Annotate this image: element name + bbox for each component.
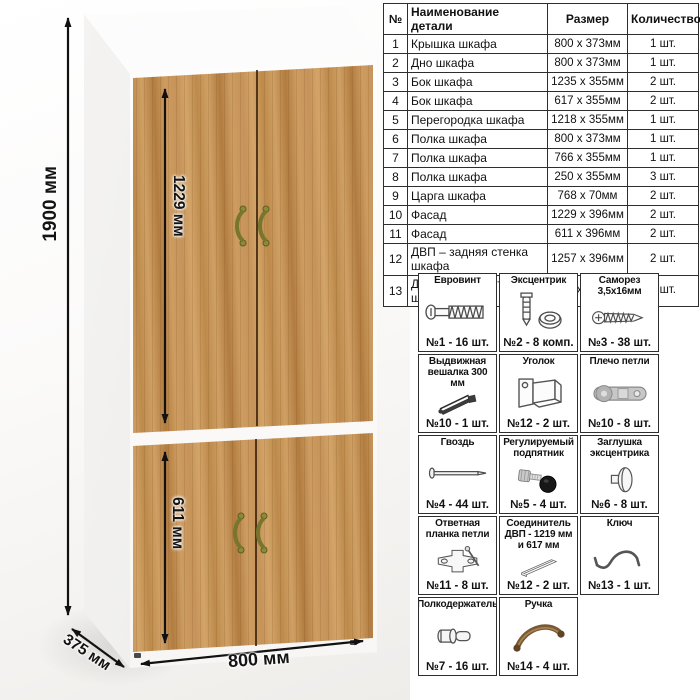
hinge-arm-icon <box>584 368 656 418</box>
hardware-item-count: №1 - 16 шт. <box>426 337 489 349</box>
part-size-cell: 617 х 355мм <box>548 92 628 111</box>
part-quantity-cell: 2 шт. <box>628 225 699 244</box>
hardware-cell: Регулируемый подпятник №5 - 4 шт. <box>499 435 578 514</box>
table-row: 4 Бок шкафа 617 х 355мм 2 шт. <box>384 92 699 111</box>
part-number-cell: 13 <box>384 275 408 306</box>
table-row: 7 Полка шкафа 766 х 355мм 1 шт. <box>384 149 699 168</box>
hardware-item-title: Уголок <box>523 357 555 368</box>
part-quantity-cell: 2 шт. <box>628 187 699 206</box>
hardware-item-count: №2 - 8 комп. <box>503 337 573 349</box>
part-name-cell: Бок шкафа <box>408 92 548 111</box>
header-row: № Наименование детали Размер Количество <box>384 4 699 35</box>
hardware-cell: Заглушка эксцентрика №6 - 8 шт. <box>580 435 659 514</box>
part-size-cell: 1218 х 355мм <box>548 111 628 130</box>
part-name-cell: Дно шкафа <box>408 54 548 73</box>
hardware-cell: Ручка №14 - 4 шт. <box>499 597 578 676</box>
table-row: 10 Фасад 1229 х 396мм 2 шт. <box>384 206 699 225</box>
nail-icon <box>422 449 494 499</box>
hardware-item-count: №6 - 8 шт. <box>591 499 647 511</box>
part-number-cell: 10 <box>384 206 408 225</box>
hardware-item-title: Плечо петли <box>590 357 650 368</box>
part-number-cell: 7 <box>384 149 408 168</box>
euro-screw-icon <box>422 287 494 337</box>
part-name-cell: Царга шкафа <box>408 187 548 206</box>
adjustable-foot-icon <box>503 460 575 499</box>
parts-table-body: 1 Крышка шкафа 800 х 373мм 1 шт. 2 Дно ш… <box>384 35 699 307</box>
width-dimension-label: 800 мм <box>227 647 290 672</box>
part-size-cell: 1235 х 355мм <box>548 73 628 92</box>
header-size: Размер <box>548 4 628 35</box>
part-quantity-cell: 2 шт. <box>628 244 699 275</box>
hardware-item-title: Заглушка эксцентрика <box>582 438 657 460</box>
part-number-cell: 5 <box>384 111 408 130</box>
table-row: 2 Дно шкафа 800 х 373мм 1 шт. <box>384 54 699 73</box>
part-size-cell: 611 х 396мм <box>548 225 628 244</box>
hardware-item-count: №14 - 4 шт. <box>507 661 570 673</box>
part-quantity-cell: 2 шт. <box>628 73 699 92</box>
hardware-item-title: Ручка <box>525 600 553 611</box>
hardware-item-count: №3 - 38 шт. <box>588 337 651 349</box>
hardware-item-title: Эксцентрик <box>511 276 566 287</box>
hardware-cell: Евровинт №1 - 16 шт. <box>418 273 497 352</box>
hardware-item-count: №11 - 8 шт. <box>426 580 488 592</box>
corner-bracket-icon <box>503 368 575 418</box>
table-row: 3 Бок шкафа 1235 х 355мм 2 шт. <box>384 73 699 92</box>
dimension-lines <box>68 18 363 667</box>
part-number-cell: 8 <box>384 168 408 187</box>
part-quantity-cell: 1 шт. <box>628 111 699 130</box>
part-quantity-cell: 1 шт. <box>628 149 699 168</box>
hardware-item-count: №10 - 8 шт. <box>588 418 651 430</box>
part-size-cell: 768 х 70мм <box>548 187 628 206</box>
hardware-grid: Евровинт №1 - 16 шт. Эксцентрик №2 - 8 к… <box>418 273 661 676</box>
hardware-cell: Ключ №13 - 1 шт. <box>580 516 659 595</box>
hardware-cell: Ответная планка петли №11 - 8 шт. <box>418 516 497 595</box>
pull-out-hanger-icon <box>422 389 494 418</box>
upper-right-handle <box>260 206 269 246</box>
part-size-cell: 766 х 355мм <box>548 149 628 168</box>
hardware-item-count: №7 - 16 шт. <box>426 661 489 673</box>
part-size-cell: 800 х 373мм <box>548 54 628 73</box>
part-number-cell: 2 <box>384 54 408 73</box>
hardware-cell: Выдвижная вешалка 300 мм №10 - 1 шт. <box>418 354 497 433</box>
part-quantity-cell: 2 шт. <box>628 92 699 111</box>
hardware-item-count: №12 - 2 шт. <box>507 580 570 592</box>
part-number-cell: 11 <box>384 225 408 244</box>
cam-cap-icon <box>584 460 656 499</box>
hardware-item-title: Регулируемый подпятник <box>501 438 576 460</box>
cam-lock-icon <box>503 287 575 337</box>
upper-facade-dimension-label: 1229 мм <box>169 175 187 237</box>
door-handle-icon <box>503 611 575 661</box>
hardware-item-title: Гвоздь <box>441 438 475 449</box>
hinge-plate-icon <box>422 541 494 580</box>
part-name-cell: Бок шкафа <box>408 73 548 92</box>
header-quantity: Количество <box>628 4 699 35</box>
hardware-item-title: Соединитель ДВП - 1219 мм и 617 мм <box>501 519 576 551</box>
lower-right-handle <box>258 513 267 553</box>
hardware-item-count: №13 - 1 шт. <box>588 580 651 592</box>
height-dimension-label: 1900 мм <box>40 166 62 242</box>
part-number-cell: 1 <box>384 35 408 54</box>
hardware-cell: Гвоздь №4 - 44 шт. <box>418 435 497 514</box>
part-number-cell: 12 <box>384 244 408 275</box>
part-quantity-cell: 2 шт. <box>628 206 699 225</box>
lower-facade-dimension-label: 611 мм <box>168 497 186 549</box>
hardware-cell: Уголок №12 - 2 шт. <box>499 354 578 433</box>
hdf-connector-icon <box>503 551 575 580</box>
part-name-cell: Полка шкафа <box>408 149 548 168</box>
part-size-cell: 250 х 355мм <box>548 168 628 187</box>
header-number: № <box>384 4 408 35</box>
upper-left-handle <box>237 206 246 246</box>
hardware-item-title: Евровинт <box>434 276 481 287</box>
assembly-sheet: 1900 мм 1229 мм 611 мм 800 мм 375 мм № Н… <box>0 0 700 700</box>
part-size-cell: 800 х 373мм <box>548 130 628 149</box>
part-size-cell: 1229 х 396мм <box>548 206 628 225</box>
shelf-pin-icon <box>422 611 494 661</box>
table-row: 9 Царга шкафа 768 х 70мм 2 шт. <box>384 187 699 206</box>
part-number-cell: 4 <box>384 92 408 111</box>
lower-left-handle <box>235 513 244 553</box>
part-size-cell: 1257 х 396мм <box>548 244 628 275</box>
part-number-cell: 9 <box>384 187 408 206</box>
hardware-item-title: Саморез 3,5х16мм <box>582 276 657 298</box>
dimension-arrows <box>0 0 410 700</box>
table-row: 5 Перегородка шкафа 1218 х 355мм 1 шт. <box>384 111 699 130</box>
hardware-item-title: Ключ <box>607 519 633 530</box>
table-row: 1 Крышка шкафа 800 х 373мм 1 шт. <box>384 35 699 54</box>
hardware-item-count: №10 - 1 шт. <box>426 418 489 430</box>
parts-table: № Наименование детали Размер Количество … <box>383 3 699 307</box>
hardware-item-title: Ответная планка петли <box>420 519 495 541</box>
part-name-cell: Полка шкафа <box>408 168 548 187</box>
hardware-cell: Полкодержатель №7 - 16 шт. <box>418 597 497 676</box>
hardware-item-title: Выдвижная вешалка 300 мм <box>420 357 495 389</box>
hardware-cell: Плечо петли №10 - 8 шт. <box>580 354 659 433</box>
hex-key-icon <box>584 530 656 580</box>
part-name-cell: Полка шкафа <box>408 130 548 149</box>
hardware-cell: Соединитель ДВП - 1219 мм и 617 мм №12 -… <box>499 516 578 595</box>
part-name-cell: Фасад <box>408 225 548 244</box>
part-quantity-cell: 1 шт. <box>628 35 699 54</box>
wardrobe-photo: 1900 мм 1229 мм 611 мм 800 мм 375 мм <box>0 0 410 700</box>
table-row: 8 Полка шкафа 250 х 355мм 3 шт. <box>384 168 699 187</box>
part-quantity-cell: 3 шт. <box>628 168 699 187</box>
part-quantity-cell: 1 шт. <box>628 54 699 73</box>
hardware-cell: Эксцентрик №2 - 8 комп. <box>499 273 578 352</box>
part-quantity-cell: 1 шт. <box>628 130 699 149</box>
table-row: 12 ДВП – задняя стенка шкафа 1257 х 396м… <box>384 244 699 275</box>
hardware-item-count: №12 - 2 шт. <box>507 418 570 430</box>
hardware-item-title: Полкодержатель <box>418 600 497 611</box>
hardware-item-count: №5 - 4 шт. <box>510 499 566 511</box>
table-row: 11 Фасад 611 х 396мм 2 шт. <box>384 225 699 244</box>
table-row: 6 Полка шкафа 800 х 373мм 1 шт. <box>384 130 699 149</box>
part-name-cell: Крышка шкафа <box>408 35 548 54</box>
part-name-cell: Фасад <box>408 206 548 225</box>
part-size-cell: 800 х 373мм <box>548 35 628 54</box>
parts-table-header: № Наименование детали Размер Количество <box>384 4 699 35</box>
door-handles <box>235 206 269 553</box>
hardware-item-count: №4 - 44 шт. <box>426 499 489 511</box>
part-number-cell: 3 <box>384 73 408 92</box>
part-number-cell: 6 <box>384 130 408 149</box>
part-name-cell: ДВП – задняя стенка шкафа <box>408 244 548 275</box>
header-part-name: Наименование детали <box>408 4 548 35</box>
hardware-cell: Саморез 3,5х16мм №3 - 38 шт. <box>580 273 659 352</box>
self-tapping-screw-icon <box>584 298 656 337</box>
part-name-cell: Перегородка шкафа <box>408 111 548 130</box>
